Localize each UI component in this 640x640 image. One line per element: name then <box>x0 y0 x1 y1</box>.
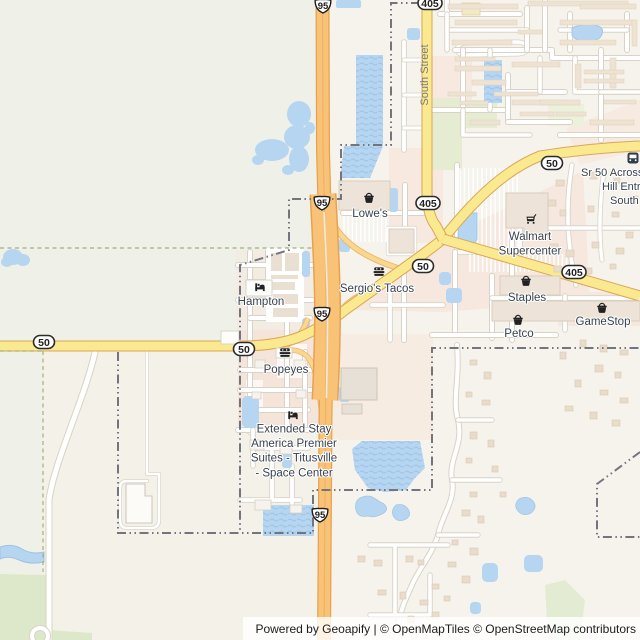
svg-text:95: 95 <box>315 510 326 521</box>
svg-text:South Street: South Street <box>419 44 431 105</box>
svg-text:Hampton: Hampton <box>238 296 285 308</box>
svg-text:405: 405 <box>565 267 583 279</box>
svg-text:95: 95 <box>318 1 329 12</box>
svg-text:Walmart: Walmart <box>509 231 552 243</box>
svg-text:Supercenter: Supercenter <box>499 246 562 258</box>
svg-text:Suites - Titusville: Suites - Titusville <box>251 453 337 465</box>
svg-text:Staples: Staples <box>508 292 547 304</box>
svg-text:50: 50 <box>546 158 558 170</box>
svg-text:Extended Stay: Extended Stay <box>257 424 332 436</box>
svg-text:50: 50 <box>38 337 50 349</box>
svg-text:Popeyes: Popeyes <box>264 364 309 376</box>
svg-text:50: 50 <box>417 261 429 273</box>
svg-text:GameStop: GameStop <box>576 316 631 328</box>
svg-text:South S: South S <box>610 195 640 207</box>
svg-text:95: 95 <box>317 309 328 320</box>
svg-text:50: 50 <box>238 344 250 356</box>
svg-text:America Premier: America Premier <box>251 438 337 450</box>
svg-text:405: 405 <box>419 198 437 210</box>
svg-text:95: 95 <box>317 198 328 209</box>
svg-text:Petco: Petco <box>504 328 533 340</box>
svg-text:Lowe's: Lowe's <box>352 208 388 220</box>
svg-text:Sergio's Tacos: Sergio's Tacos <box>340 283 414 295</box>
svg-text:405: 405 <box>421 0 439 10</box>
svg-text:Sr 50 Across fro: Sr 50 Across fro <box>581 167 640 179</box>
svg-text:- Space Center: - Space Center <box>255 467 333 479</box>
svg-text:Hill Entra: Hill Entra <box>602 181 640 193</box>
